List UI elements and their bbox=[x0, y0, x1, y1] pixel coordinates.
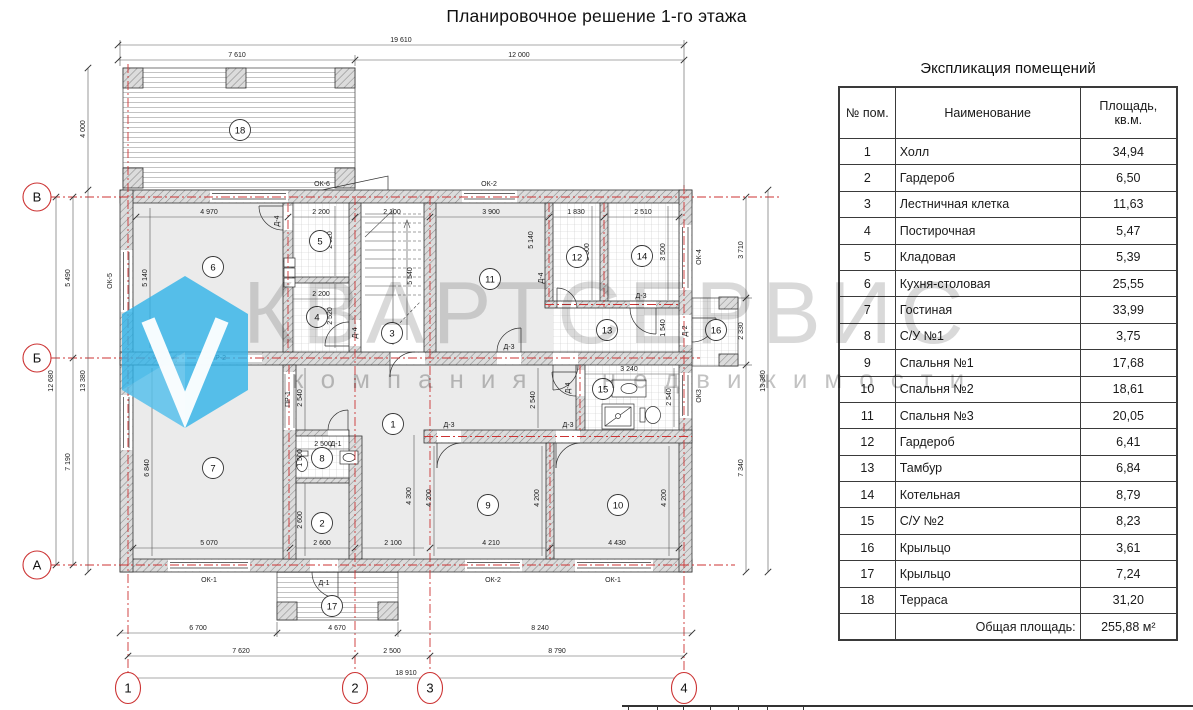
cell-area: 7,24 bbox=[1080, 561, 1177, 587]
dim: 4 430 bbox=[608, 540, 626, 547]
axis-col-label: 2 bbox=[351, 681, 358, 696]
room-badge-5: 5 bbox=[310, 231, 331, 252]
dim: 4 970 bbox=[200, 209, 218, 216]
cell-num: 14 bbox=[839, 482, 895, 508]
room-badge-11: 11 bbox=[480, 269, 501, 290]
opening-label: ПР-1 bbox=[285, 391, 292, 407]
table-row: 5Кладовая5,39 bbox=[839, 244, 1177, 270]
cell-name: Лестничная клетка bbox=[895, 191, 1080, 217]
explication-panel: Экспликация помещений № пом. Наименовани… bbox=[838, 60, 1178, 641]
dim: 2 510 bbox=[634, 209, 652, 216]
svg-text:7: 7 bbox=[210, 464, 215, 475]
dim: 7 340 bbox=[738, 459, 745, 477]
door-label: Д-3 bbox=[636, 293, 647, 300]
window-label: ОК-2 bbox=[485, 577, 501, 584]
table-row: 7Гостиная33,99 bbox=[839, 297, 1177, 323]
cell-area: 11,63 bbox=[1080, 191, 1177, 217]
cell-num: 11 bbox=[839, 402, 895, 428]
svg-text:4: 4 bbox=[314, 313, 319, 324]
svg-text:10: 10 bbox=[613, 501, 624, 512]
room-badge-1: 1 bbox=[383, 414, 404, 435]
dim: 4 300 bbox=[406, 487, 413, 505]
cell-area: 6,84 bbox=[1080, 455, 1177, 481]
room-badge-8: 8 bbox=[312, 448, 333, 469]
door-label: Д-4 bbox=[352, 327, 359, 338]
cell-name: С/У №1 bbox=[895, 323, 1080, 349]
dim: 5 490 bbox=[65, 269, 72, 287]
dim: 2 500 bbox=[383, 648, 401, 655]
cell-name: Гардероб bbox=[895, 429, 1080, 455]
dim: 1 830 bbox=[567, 209, 585, 216]
cell-num: 10 bbox=[839, 376, 895, 402]
cell-area: 6,41 bbox=[1080, 429, 1177, 455]
svg-text:12: 12 bbox=[572, 253, 583, 264]
table-row: 15С/У №28,23 bbox=[839, 508, 1177, 534]
explication-title: Экспликация помещений bbox=[838, 60, 1178, 77]
dim: 2 600 bbox=[297, 511, 304, 529]
door-label: Д-3 bbox=[444, 422, 455, 429]
explication-table: № пом. Наименование Площадь, кв.м. 1Холл… bbox=[838, 86, 1178, 641]
cell-name: Терраса bbox=[895, 587, 1080, 613]
cell-area: 25,55 bbox=[1080, 270, 1177, 296]
dim: 2 330 bbox=[738, 322, 745, 340]
dim: 6 700 bbox=[189, 625, 207, 632]
door-label: Д-2 bbox=[682, 325, 689, 336]
window-label: ОК-2 bbox=[481, 181, 497, 188]
room-badge-10: 10 bbox=[608, 495, 629, 516]
window-label: ОК-1 bbox=[201, 577, 217, 584]
cell-name: Крыльцо bbox=[895, 561, 1080, 587]
total-label: Общая площадь: bbox=[895, 614, 1080, 641]
cell-num: 9 bbox=[839, 350, 895, 376]
table-row: 6Кухня-столовая25,55 bbox=[839, 270, 1177, 296]
dim: 4 200 bbox=[426, 489, 433, 507]
titleblock-fragment bbox=[622, 705, 1193, 710]
dim: 2 200 bbox=[312, 209, 330, 216]
cell-name: Гостиная bbox=[895, 297, 1080, 323]
cell-num: 5 bbox=[839, 244, 895, 270]
table-row: 16Крыльцо3,61 bbox=[839, 534, 1177, 560]
window-label: ОК-6 bbox=[314, 181, 330, 188]
dim: 2 100 bbox=[384, 540, 402, 547]
room-badge-15: 15 bbox=[593, 379, 614, 400]
window-label: ОК-4 bbox=[696, 249, 703, 265]
table-row: 10Спальня №218,61 bbox=[839, 376, 1177, 402]
dim-top-left: 7 610 bbox=[228, 52, 246, 59]
axis-row-label: А bbox=[33, 558, 42, 573]
dim: 13 380 bbox=[760, 370, 767, 392]
cell-name: Спальня №1 bbox=[895, 350, 1080, 376]
door-label: Д-4 bbox=[565, 382, 572, 393]
cell-area: 18,61 bbox=[1080, 376, 1177, 402]
svg-text:13: 13 bbox=[602, 326, 613, 337]
dim: 2 540 bbox=[530, 391, 537, 409]
table-row: 14Котельная8,79 bbox=[839, 482, 1177, 508]
table-row: 17Крыльцо7,24 bbox=[839, 561, 1177, 587]
table-header-row: № пом. Наименование Площадь, кв.м. bbox=[839, 87, 1177, 139]
cell-name: Холл bbox=[895, 139, 1080, 165]
cell-name: Кухня-столовая bbox=[895, 270, 1080, 296]
room-badge-7: 7 bbox=[203, 458, 224, 479]
cell-area: 3,61 bbox=[1080, 534, 1177, 560]
table-row: 8С/У №13,75 bbox=[839, 323, 1177, 349]
svg-text:2: 2 bbox=[319, 519, 324, 530]
dim: 3 710 bbox=[738, 241, 745, 259]
room-badge-17: 17 bbox=[322, 596, 343, 617]
cell-num: 6 bbox=[839, 270, 895, 296]
table-row: 9Спальня №117,68 bbox=[839, 350, 1177, 376]
header-num: № пом. bbox=[839, 87, 895, 139]
cell-area: 8,23 bbox=[1080, 508, 1177, 534]
svg-text:3: 3 bbox=[389, 329, 394, 340]
cell-num: 18 bbox=[839, 587, 895, 613]
dim: 8 790 bbox=[548, 648, 566, 655]
cell-name: Спальня №2 bbox=[895, 376, 1080, 402]
cell-area: 17,68 bbox=[1080, 350, 1177, 376]
dim: 5 540 bbox=[407, 267, 414, 285]
cell-num: 15 bbox=[839, 508, 895, 534]
dim: 4 210 bbox=[482, 540, 500, 547]
cell-num: 1 bbox=[839, 139, 895, 165]
room-badge-12: 12 bbox=[567, 247, 588, 268]
dim: 2 200 bbox=[312, 291, 330, 298]
total-value: 255,88 м² bbox=[1080, 614, 1177, 641]
door-label: Д-3 bbox=[563, 422, 574, 429]
dim: 2 520 bbox=[327, 307, 334, 325]
dim: 4 000 bbox=[80, 120, 87, 138]
cell-num: 4 bbox=[839, 218, 895, 244]
cell-area: 34,94 bbox=[1080, 139, 1177, 165]
room-badge-18: 18 bbox=[230, 120, 251, 141]
floor-plan: 19 610 7 610 12 000 6 700 4 670 8 240 7 … bbox=[0, 0, 835, 710]
svg-text:15: 15 bbox=[598, 385, 609, 396]
cell-area: 20,05 bbox=[1080, 402, 1177, 428]
dim: 5 070 bbox=[200, 540, 218, 547]
axis-row-label: В bbox=[33, 190, 42, 205]
svg-text:11: 11 bbox=[485, 275, 495, 286]
svg-text:5: 5 bbox=[317, 237, 322, 248]
cell-num: 7 bbox=[839, 297, 895, 323]
dim: 7 620 bbox=[232, 648, 250, 655]
axis-col-label: 1 bbox=[124, 681, 131, 696]
svg-text:17: 17 bbox=[327, 602, 338, 613]
cell-num: 3 bbox=[839, 191, 895, 217]
door-label: Д-1 bbox=[331, 441, 342, 448]
dim: 1 500 bbox=[297, 449, 304, 467]
dim: 2 540 bbox=[297, 389, 304, 407]
table-row: 1Холл34,94 bbox=[839, 139, 1177, 165]
dim-top-right: 12 000 bbox=[508, 52, 530, 59]
table-row: 4Постирочная5,47 bbox=[839, 218, 1177, 244]
table-row: 2Гардероб6,50 bbox=[839, 165, 1177, 191]
window-label: ОК3 bbox=[696, 389, 703, 403]
cell-area: 5,47 bbox=[1080, 218, 1177, 244]
room-badge-2: 2 bbox=[312, 513, 333, 534]
table-total-row: Общая площадь:255,88 м² bbox=[839, 614, 1177, 641]
cell-name: Котельная bbox=[895, 482, 1080, 508]
cell-name: Гардероб bbox=[895, 165, 1080, 191]
cell-name: Крыльцо bbox=[895, 534, 1080, 560]
dim: 5 140 bbox=[528, 231, 535, 249]
cell-num: 17 bbox=[839, 561, 895, 587]
header-name: Наименование bbox=[895, 87, 1080, 139]
svg-text:6: 6 bbox=[210, 263, 215, 274]
dim: 8 240 bbox=[531, 625, 549, 632]
cell-num: 13 bbox=[839, 455, 895, 481]
axis-col-label: 4 bbox=[680, 681, 687, 696]
cell-area: 3,75 bbox=[1080, 323, 1177, 349]
svg-text:18: 18 bbox=[235, 126, 246, 137]
dim: 2 100 bbox=[383, 209, 401, 216]
cell-empty bbox=[839, 614, 895, 641]
door-label: Д-4 bbox=[274, 215, 281, 226]
dim: 5 140 bbox=[142, 269, 149, 287]
table-row: 12Гардероб6,41 bbox=[839, 429, 1177, 455]
dim: 7 190 bbox=[65, 453, 72, 471]
window-label: ОК-1 bbox=[605, 577, 621, 584]
axis-col-label: 3 bbox=[426, 681, 433, 696]
table-row: 11Спальня №320,05 bbox=[839, 402, 1177, 428]
cell-num: 2 bbox=[839, 165, 895, 191]
svg-text:1: 1 bbox=[390, 420, 395, 431]
cell-name: С/У №2 bbox=[895, 508, 1080, 534]
svg-text:14: 14 bbox=[637, 252, 648, 263]
room-badge-4: 4 bbox=[307, 307, 328, 328]
cell-num: 16 bbox=[839, 534, 895, 560]
dim-top-total: 19 610 bbox=[390, 37, 412, 44]
dim: 2 540 bbox=[666, 388, 673, 406]
cell-name: Кладовая bbox=[895, 244, 1080, 270]
cell-num: 8 bbox=[839, 323, 895, 349]
svg-text:9: 9 bbox=[485, 501, 490, 512]
opening-label: ПР-2 bbox=[210, 355, 226, 362]
room-badge-9: 9 bbox=[478, 495, 499, 516]
axis-row-label: Б bbox=[33, 351, 42, 366]
dim: 18 910 bbox=[395, 670, 417, 677]
dim: 4 200 bbox=[661, 489, 668, 507]
cell-area: 8,79 bbox=[1080, 482, 1177, 508]
room-badge-6: 6 bbox=[203, 257, 224, 278]
room-badge-14: 14 bbox=[632, 246, 653, 267]
room-badge-13: 13 bbox=[597, 320, 618, 341]
cell-num: 12 bbox=[839, 429, 895, 455]
header-area: Площадь, кв.м. bbox=[1080, 87, 1177, 139]
page: { "title": "Планировочное решение 1-го э… bbox=[0, 0, 1193, 710]
dim: 4 200 bbox=[534, 489, 541, 507]
svg-text:16: 16 bbox=[711, 326, 722, 337]
svg-text:8: 8 bbox=[319, 454, 324, 465]
table-row: 3Лестничная клетка11,63 bbox=[839, 191, 1177, 217]
dim: 13 380 bbox=[80, 370, 87, 392]
dim: 4 670 bbox=[328, 625, 346, 632]
dim: 12 680 bbox=[48, 370, 55, 392]
dim: 1 540 bbox=[660, 319, 667, 337]
dim: 2 500 bbox=[314, 441, 332, 448]
dim: 2 600 bbox=[313, 540, 331, 547]
cell-name: Постирочная bbox=[895, 218, 1080, 244]
dim: 6 840 bbox=[144, 459, 151, 477]
cell-name: Тамбур bbox=[895, 455, 1080, 481]
cell-area: 33,99 bbox=[1080, 297, 1177, 323]
table-row: 13Тамбур6,84 bbox=[839, 455, 1177, 481]
door-label: Д-1 bbox=[319, 580, 330, 587]
door-label: Д-3 bbox=[504, 344, 515, 351]
room-badge-3: 3 bbox=[382, 323, 403, 344]
window-label: ОК-5 bbox=[107, 273, 114, 289]
cell-area: 5,39 bbox=[1080, 244, 1177, 270]
door-label: Д-4 bbox=[538, 272, 545, 283]
cell-area: 31,20 bbox=[1080, 587, 1177, 613]
dim: 3 240 bbox=[620, 366, 638, 373]
dim: 3 900 bbox=[482, 209, 500, 216]
room-badge-16: 16 bbox=[706, 320, 727, 341]
dim: 3 500 bbox=[660, 243, 667, 261]
cell-name: Спальня №3 bbox=[895, 402, 1080, 428]
table-row: 18Терраса31,20 bbox=[839, 587, 1177, 613]
cell-area: 6,50 bbox=[1080, 165, 1177, 191]
